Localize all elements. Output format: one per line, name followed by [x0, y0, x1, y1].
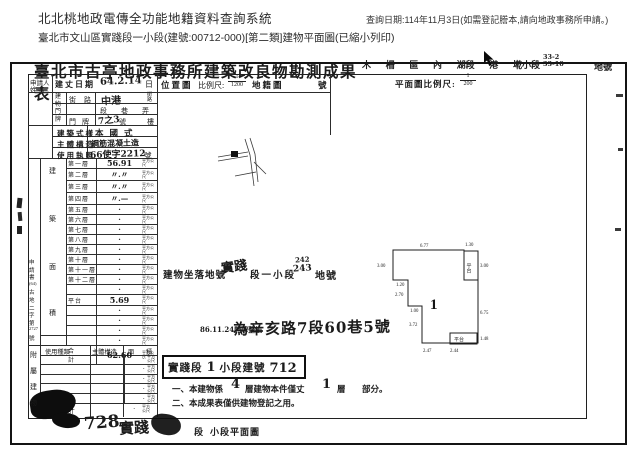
- floor-area-value: 56.91: [97, 158, 142, 168]
- floor-label: 第十一層: [66, 265, 97, 274]
- plan-dimension: 1.30: [465, 243, 474, 248]
- scan-artifact: [17, 226, 22, 234]
- plan-scale-label: 平面圖比例尺:: [395, 78, 456, 90]
- annex-area-cell: ·平方公尺: [125, 385, 157, 393]
- grid-line: [66, 92, 67, 125]
- plan-dimension: 2.47: [423, 349, 432, 354]
- area-unit: 平方公尺: [142, 159, 157, 167]
- floor-label: [66, 316, 97, 325]
- bottom-printed-1: 段: [194, 425, 203, 438]
- floor-label: 第四層: [66, 193, 97, 204]
- street-label: 街路: [69, 95, 99, 105]
- annex-structure-cell: [91, 375, 125, 384]
- district-lot-numbers: 33-2 33-10: [543, 54, 564, 68]
- door-suffix: 號: [119, 117, 126, 127]
- floor-area-value: ·: [97, 306, 142, 315]
- note-1-d: 部分。: [362, 383, 388, 395]
- area-unit: 平方公尺: [142, 256, 157, 264]
- area-unit: 平方公尺: [142, 296, 157, 304]
- vertical-label-char: 附: [30, 350, 37, 360]
- floor-label: [66, 326, 97, 335]
- floor-label: 第九層: [66, 245, 97, 254]
- stamp-section: 實踐段: [168, 360, 203, 375]
- note-2: 二、本成果表僅供建物登記之用。: [172, 397, 300, 409]
- plan-dimension: 3.00: [377, 264, 386, 269]
- floor-area-value: ·: [97, 235, 142, 244]
- vertical-label-char: 建: [49, 166, 56, 176]
- bottom-printed-2: 小段平面圖: [210, 425, 260, 438]
- area-unit: 平方公尺: [147, 365, 156, 373]
- door-value: 7之3: [97, 112, 120, 127]
- grid-line: [40, 335, 66, 336]
- site-lot-suffix: 地號: [315, 267, 337, 282]
- lot-number-2: 33-10: [543, 61, 564, 68]
- annex-use-cell: [40, 365, 91, 374]
- annex-structure-cell: [91, 394, 125, 403]
- floor-area-row: 第十二層·平方公尺: [66, 274, 157, 284]
- vertical-label-char: 面: [49, 262, 56, 272]
- location-sketch: [210, 132, 272, 190]
- floor-area-row: 平台5.69平方公尺: [66, 294, 157, 305]
- plan-building-number: 1: [430, 297, 438, 313]
- floor-area-row: 第三層〃.〃平方公尺: [66, 180, 157, 192]
- annex-row: ·平方公尺: [40, 355, 157, 364]
- annex-area-cell: ·平方公尺: [125, 365, 157, 373]
- floor-area-value: ·: [97, 336, 142, 345]
- survey-date-suffix: 日: [145, 79, 153, 90]
- floor-label: 第十層: [66, 255, 97, 264]
- floor-label: 第二層: [66, 169, 97, 180]
- floor-area-table: 第一層56.91平方公尺第二層〃.〃平方公尺第三層〃.〃平方公尺第四層〃.—平方…: [66, 158, 157, 345]
- floor-area-row: ·平方公尺: [66, 284, 157, 294]
- annex-total-unit: 平方公尺: [142, 405, 151, 413]
- district-part: 區: [409, 58, 418, 71]
- plan-dimension: 1.20: [396, 283, 405, 288]
- page-subtitle: 臺北市文山區實踐段一小段(建號:00712-000)[第二類]建物平面圖(已縮小…: [38, 30, 394, 45]
- floor-area-value: ·: [97, 205, 142, 214]
- note-1-hand-surveyed: 1: [322, 377, 331, 392]
- plan-scale-fraction: 1 200: [460, 74, 476, 87]
- annex-area-value: ·: [143, 375, 145, 383]
- area-unit: 平方公尺: [142, 266, 157, 274]
- floor-area-row: 第二層〃.〃平方公尺: [66, 168, 157, 180]
- floor-area-row: 第十一層·平方公尺: [66, 264, 157, 274]
- annex-area-cell: ·平方公尺: [125, 375, 157, 383]
- annex-area-value: ·: [143, 385, 145, 393]
- scale-label: 比例尺:: [198, 80, 224, 91]
- district-line: 木柵區內湖段港墘小段: [362, 58, 540, 71]
- bottom-hand-section: 實踐: [118, 416, 149, 439]
- floor-area-row: 第六層·平方公尺: [66, 214, 157, 224]
- annex-structure-cell: [91, 384, 125, 393]
- area-unit: 平方公尺: [142, 216, 157, 224]
- area-unit: 平方公尺: [142, 171, 157, 179]
- plan-dimension: 6.77: [420, 244, 429, 249]
- annex-area-value: ·: [143, 395, 145, 403]
- alley-label: 弄: [142, 106, 149, 116]
- annex-area-value: ·: [143, 355, 145, 363]
- floor-area-value: ·: [97, 285, 142, 294]
- floor-area-row: 第九層·平方公尺: [66, 244, 157, 254]
- address-block-label: 建物門牌: [55, 94, 65, 124]
- floor-area-row: 第八層·平方公尺: [66, 234, 157, 244]
- scan-artifact: [615, 228, 621, 231]
- area-unit: 平方公尺: [147, 355, 156, 363]
- plan-dimension: 3.72: [409, 323, 418, 328]
- site-lot-section-hand: 實踐: [220, 254, 248, 276]
- location-scale-fraction: 1 1200: [228, 75, 246, 88]
- floor-label: [66, 306, 97, 315]
- stamp-building-number: 712: [270, 361, 297, 376]
- bottom-hand-number: 728: [83, 411, 120, 434]
- vertical-label-char: 築: [49, 214, 56, 224]
- plan-dimension: 1.00: [410, 309, 419, 314]
- floor-area-row: ·平方公尺: [66, 305, 157, 315]
- note-1-a: 一、本建物係: [172, 383, 223, 395]
- area-unit: 平方公尺: [142, 337, 157, 345]
- scan-artifact: [618, 148, 623, 151]
- area-unit: 平方公尺: [147, 395, 156, 403]
- district-suffix: 地號: [594, 60, 612, 73]
- floor-area-row: ·平方公尺: [66, 315, 157, 325]
- site-lot-number: 243: [293, 263, 312, 274]
- area-unit: 平方公尺: [142, 206, 157, 214]
- scan-artifact: [16, 198, 22, 208]
- plan-platform1-label: 平台: [466, 263, 472, 274]
- survey-date-label: 建丈日期: [55, 79, 95, 90]
- floor-area-row: ·平方公尺: [66, 325, 157, 335]
- annex-area-cell: ·平方公尺: [125, 355, 157, 363]
- page: { "page": { "system_title": "北北桃地政電傳全功能地…: [0, 0, 640, 453]
- application-number-line: 2727: [29, 326, 38, 331]
- district-part: 木: [362, 58, 371, 71]
- floor-plan-drawing: 1 平台 平台 6.771.303.001.202.701.003.723.00…: [370, 226, 498, 362]
- floor-area-row: 第十層·平方公尺: [66, 254, 157, 264]
- floor-label: 第五層: [66, 205, 97, 214]
- cadastral-suffix: 號: [318, 79, 327, 91]
- plan-dimension: 2.70: [395, 293, 404, 298]
- door-label: 門牌: [69, 117, 95, 127]
- floor-area-value: ·: [97, 265, 142, 274]
- grid-line: [28, 92, 330, 93]
- style-label: 建築式樣: [57, 128, 95, 139]
- floor-area-value: ·: [97, 215, 142, 224]
- renumber-hand-text: 為辛亥路7段60巷5號: [233, 316, 391, 340]
- annex-area-value: ·: [143, 365, 145, 373]
- area-unit: 平方公尺: [147, 375, 156, 383]
- district-part: 柵: [386, 58, 395, 71]
- floor-label: 第一層: [66, 158, 97, 168]
- building-number-stamp-box: 實踐段 1 小段建號 712: [162, 355, 306, 379]
- floor-label: 第十二層: [66, 275, 97, 284]
- floor-area-value: ·: [97, 255, 142, 264]
- vertical-label-char: 物: [30, 398, 37, 408]
- floor-label: 第八層: [66, 235, 97, 244]
- area-unit: 平方公尺: [142, 286, 157, 294]
- floor-area-row: 第五層·平方公尺: [66, 204, 157, 214]
- grid-line: [52, 74, 53, 158]
- scale-numerator: 1: [236, 75, 239, 80]
- floor-area-value: 〃.〃: [97, 181, 142, 192]
- area-unit: 平方公尺: [147, 385, 156, 393]
- annex-total-value: ·: [133, 405, 135, 413]
- query-date-note: 查詢日期:114年11月3日(如需登記謄本,請向地政事務所申請。): [366, 13, 608, 26]
- floor-area-row: 第一層56.91平方公尺: [66, 158, 157, 168]
- floor-area-value: ·: [97, 245, 142, 254]
- note-1-b: 層建物本件僅丈: [245, 383, 305, 395]
- floor-area-row: 第四層〃.—平方公尺: [66, 192, 157, 204]
- cadastral-map-label: 地籍圖: [252, 79, 284, 91]
- floor-area-value: ·: [97, 225, 142, 234]
- applicant-label-2: 姓 名: [30, 84, 45, 94]
- floor-area-value: 〃.〃: [97, 169, 142, 180]
- stamp-subsection-number: 1: [207, 360, 216, 375]
- plan-dimension: 3.00: [480, 264, 489, 269]
- area-unit: 平方公尺: [142, 195, 157, 203]
- annex-structure-cell: [91, 355, 125, 364]
- vertical-label-char: 建: [30, 382, 37, 392]
- floor-area-row: ·平方公尺: [66, 335, 157, 345]
- grid-line: [330, 74, 331, 135]
- grid-line: [157, 74, 158, 417]
- annex-area-cell: ·平方公尺: [125, 395, 157, 403]
- vertical-label-char: 屬: [30, 366, 37, 376]
- area-unit: 平方公尺: [142, 183, 157, 191]
- annex-structure-cell: [91, 365, 125, 374]
- floor-label: 第六層: [66, 215, 97, 224]
- survey-date-value: 64.2.14: [100, 75, 142, 87]
- sketch-building-mark: [231, 151, 238, 157]
- annex-row: ·平方公尺: [40, 374, 157, 384]
- location-map-label: 位置圖: [161, 79, 193, 91]
- annex-row: ·平方公尺: [40, 364, 157, 374]
- area-unit: 平方公尺: [142, 317, 157, 325]
- floor-area-row: 第七層·平方公尺: [66, 224, 157, 234]
- area-unit: 平方公尺: [142, 246, 157, 254]
- street-suffix: 街路: [147, 93, 154, 103]
- lane-label: 巷: [121, 106, 128, 116]
- floor-label: 平台: [66, 295, 97, 305]
- stamp-mid: 小段建號: [220, 360, 266, 375]
- plan-scale-numerator: 1: [467, 74, 470, 79]
- area-unit: 平方公尺: [142, 276, 157, 284]
- floor-label: [66, 336, 97, 345]
- floor-area-value: 〃.—: [97, 193, 142, 204]
- vertical-label-char: 積: [49, 308, 56, 318]
- plan-dimension: 2.44: [450, 349, 459, 354]
- floor-label: [66, 285, 97, 294]
- floor-label: 第七層: [66, 225, 97, 234]
- plan-scale-denominator: 200: [464, 82, 473, 87]
- annex-use-cell: [40, 375, 91, 384]
- scan-artifact: [616, 94, 623, 97]
- area-unit: 平方公尺: [142, 327, 157, 335]
- door-suffix-2: 樓: [147, 117, 154, 127]
- floor-area-value: ·: [97, 326, 142, 335]
- floor-label: 第三層: [66, 181, 97, 192]
- note-1-c: 層: [337, 383, 346, 395]
- plan-dimension: 1.48: [480, 337, 489, 342]
- application-number-line: 號: [29, 334, 35, 342]
- plan-platform2-label: 平台: [454, 336, 464, 343]
- system-title: 北北桃地政電傳全功能地籍資料查詢系統: [38, 8, 272, 27]
- district-part: 湖段: [457, 58, 475, 71]
- scale-denominator: 1200: [231, 83, 243, 88]
- application-number-line: (64): [29, 281, 37, 286]
- floor-area-value: 5.69: [97, 295, 142, 305]
- note-1-hand-floors: 4: [231, 377, 240, 392]
- site-lot-mid: 段一小段: [250, 267, 296, 281]
- area-unit: 平方公尺: [142, 226, 157, 234]
- mouse-cursor-icon: [483, 51, 496, 68]
- floor-area-value: ·: [97, 316, 142, 325]
- district-part: 墘小段: [513, 58, 540, 71]
- annex-use-cell: [40, 355, 91, 364]
- area-unit: 平方公尺: [142, 307, 157, 315]
- area-unit: 平方公尺: [142, 236, 157, 244]
- district-part: 內: [433, 58, 442, 71]
- plan-dimension: 6.75: [480, 311, 489, 316]
- site-lot-prefix: 建物坐落地號: [163, 267, 226, 281]
- scan-artifact: [18, 212, 23, 221]
- floor-area-value: ·: [97, 275, 142, 284]
